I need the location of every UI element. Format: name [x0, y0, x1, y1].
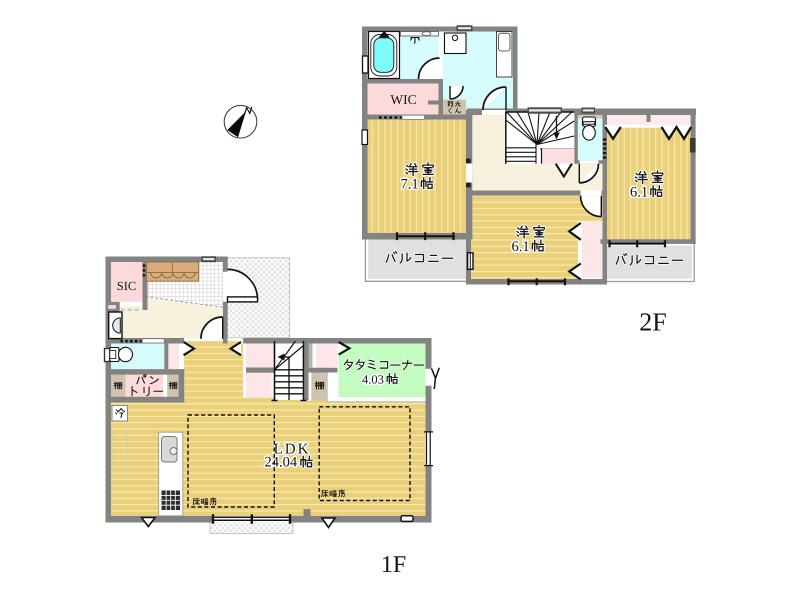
svg-text:6.1: 6.1 [512, 239, 530, 255]
svg-text:6.1: 6.1 [630, 185, 648, 201]
svg-text:WIC: WIC [390, 92, 416, 107]
svg-text:1F: 1F [381, 552, 406, 578]
svg-text:7.1: 7.1 [401, 177, 419, 193]
svg-text:SIC: SIC [117, 279, 136, 293]
svg-text:24.04: 24.04 [265, 455, 298, 471]
svg-text:2F: 2F [639, 308, 666, 337]
svg-text:4.03: 4.03 [362, 373, 384, 387]
